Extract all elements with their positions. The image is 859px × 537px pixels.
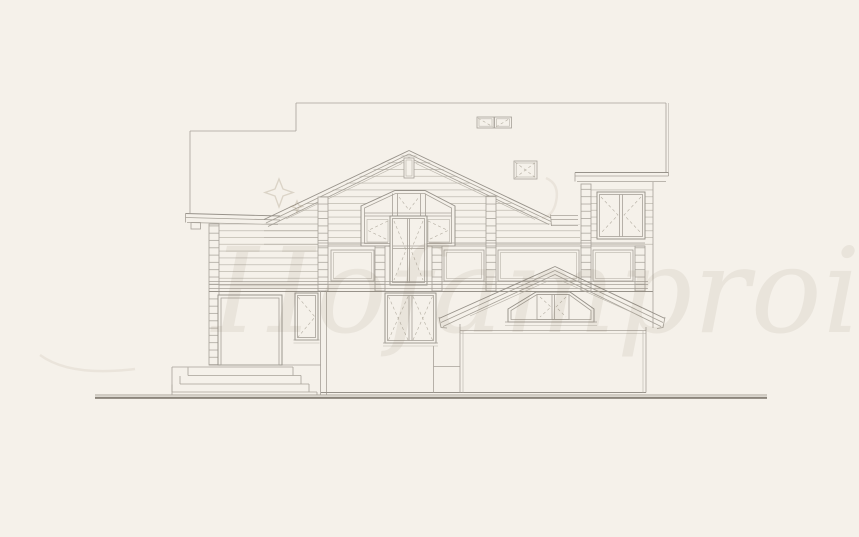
watermark-text: Hofamproi [210, 222, 859, 360]
elevation-canvas: Hofamproi [0, 0, 859, 537]
king-post [404, 158, 414, 178]
house-elevation-drawing: Hofamproi [0, 0, 859, 537]
